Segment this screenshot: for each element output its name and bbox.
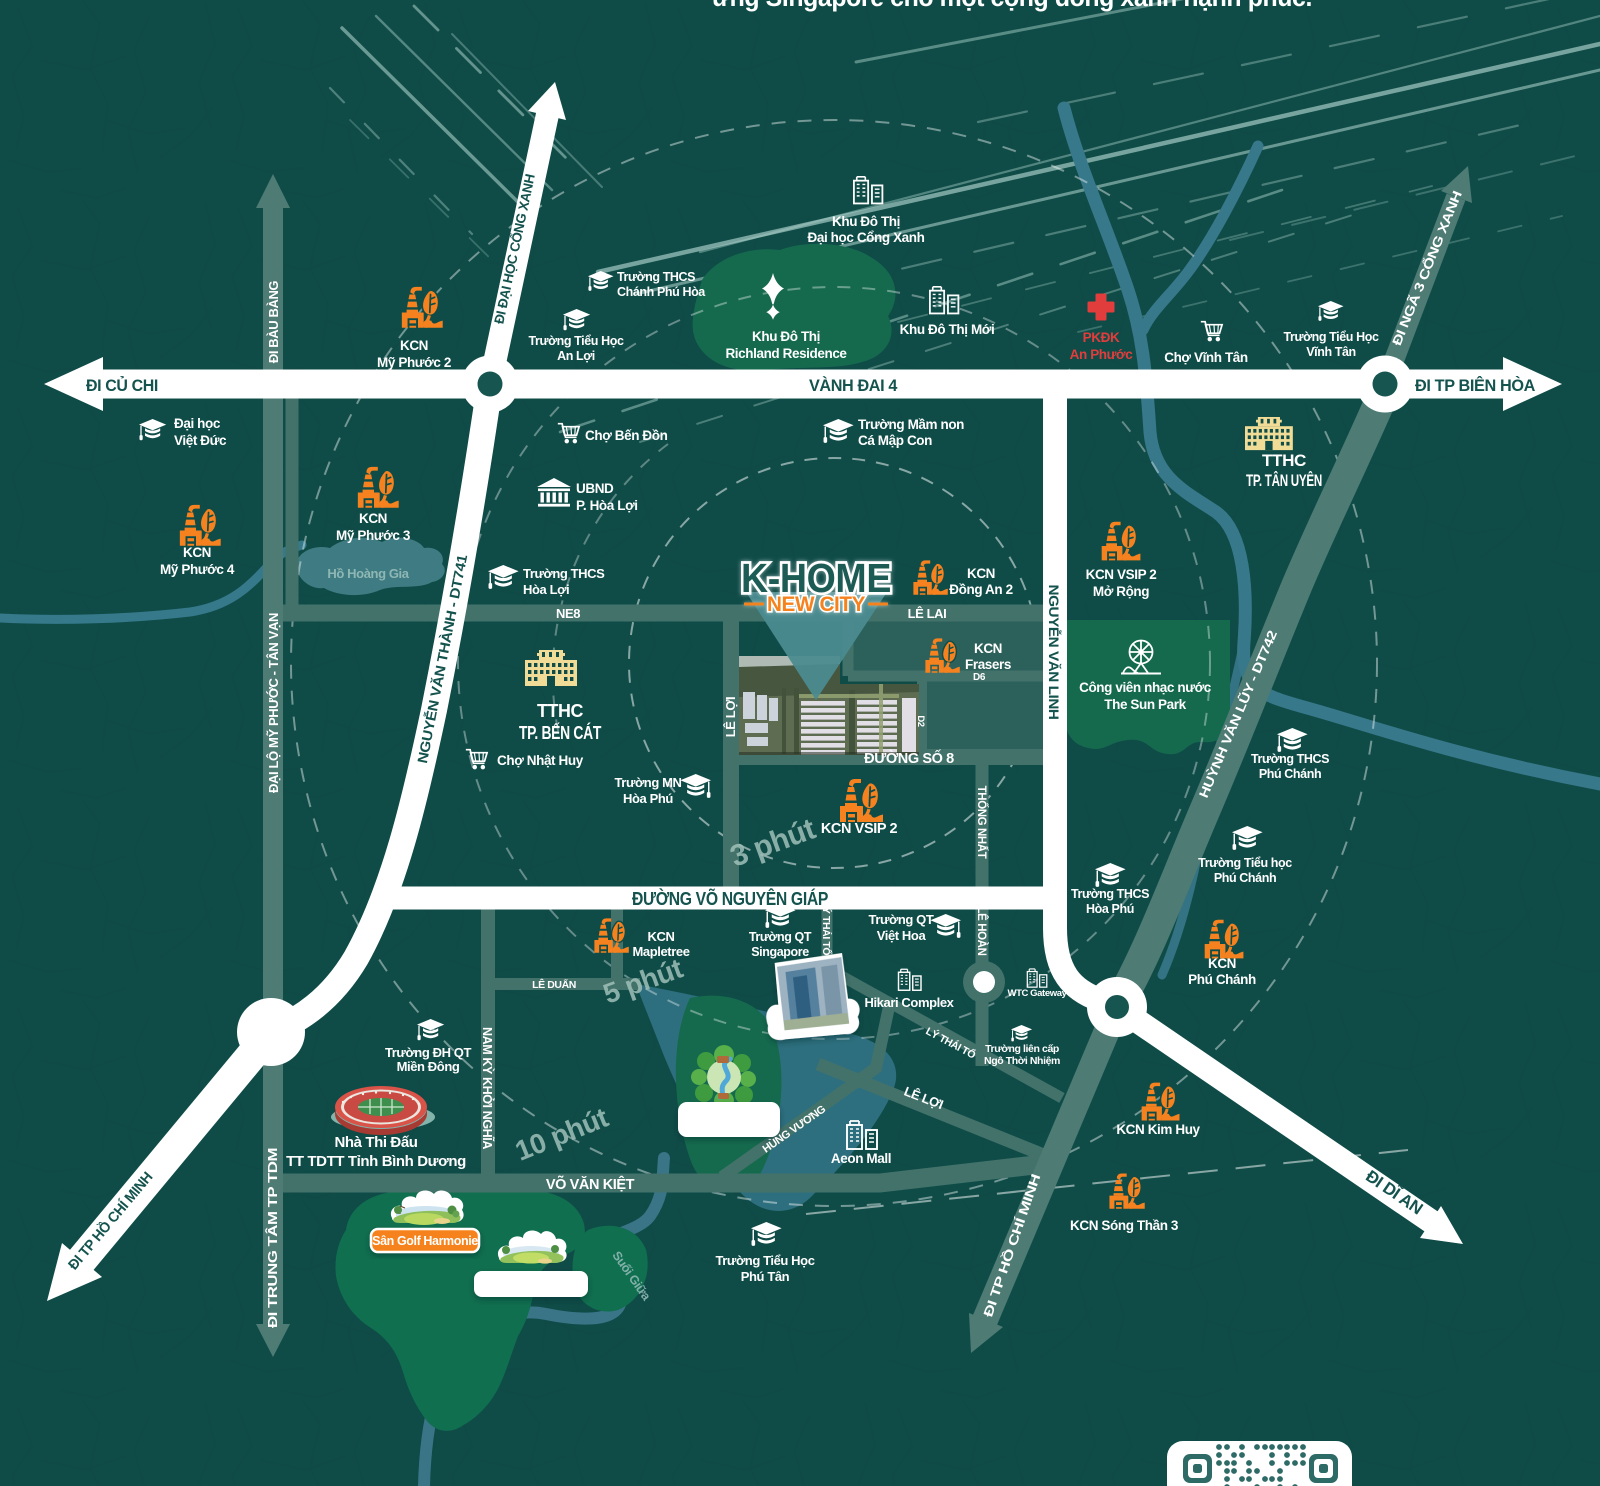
svg-text:LÝ THÁI TỔ: LÝ THÁI TỔ (820, 901, 833, 956)
svg-text:VÕ VĂN KIỆT: VÕ VĂN KIỆT (546, 1175, 635, 1193)
svg-text:KCN: KCN (1208, 956, 1236, 971)
svg-text:Hòa Lợi: Hòa Lợi (523, 582, 569, 597)
svg-text:NAM KỲ KHỞI NGHĨA: NAM KỲ KHỞI NGHĨA (480, 1027, 495, 1149)
svg-text:Đồng An 2: Đồng An 2 (949, 582, 1012, 597)
svg-text:Hòa Phú: Hòa Phú (623, 791, 673, 806)
svg-text:NGUYỄN VĂN LINH: NGUYỄN VĂN LINH (1046, 585, 1061, 720)
svg-text:Chợ Nhật Huy: Chợ Nhật Huy (497, 753, 584, 768)
svg-text:KCN: KCN (183, 545, 211, 560)
svg-text:TT TDTT Tỉnh Bình Dương: TT TDTT Tỉnh Bình Dương (286, 1153, 466, 1170)
svg-text:Đại học Cổng Xanh: Đại học Cổng Xanh (808, 230, 925, 245)
svg-text:Khu Đô Thị Mới: Khu Đô Thị Mới (900, 322, 995, 337)
svg-text:Trường THCS: Trường THCS (1071, 887, 1149, 901)
svg-text:Frasers: Frasers (965, 657, 1011, 672)
svg-text:Trường QT: Trường QT (749, 930, 812, 944)
svg-text:Khu Đô Thị: Khu Đô Thị (752, 329, 820, 344)
svg-text:Nhà Thi Đấu: Nhà Thi Đấu (334, 1134, 417, 1151)
svg-text:ĐƯỜNG VÕ NGUYÊN GIÁP: ĐƯỜNG VÕ NGUYÊN GIÁP (632, 888, 828, 909)
svg-text:Mở Rộng: Mở Rộng (1093, 584, 1149, 599)
svg-text:THỐNG NHẤT: THỐNG NHẤT (975, 786, 989, 859)
svg-text:Miền Đông: Miền Đông (397, 1059, 460, 1074)
svg-text:Việt Đức: Việt Đức (174, 433, 227, 448)
svg-text:Chánh Phú Hòa: Chánh Phú Hòa (617, 285, 706, 299)
svg-text:WTC Gateway: WTC Gateway (1008, 988, 1068, 999)
svg-text:Phú Chánh: Phú Chánh (1188, 972, 1256, 987)
svg-text:KCN: KCN (359, 511, 387, 526)
svg-text:ĐI TP BIÊN HÒA: ĐI TP BIÊN HÒA (1415, 376, 1535, 395)
svg-text:ĐI BÀU BÀNG: ĐI BÀU BÀNG (266, 281, 281, 364)
svg-text:LÊ DUẨN: LÊ DUẨN (532, 978, 576, 991)
svg-text:Trường THCS: Trường THCS (617, 270, 695, 284)
svg-text:LÊ HOÀN: LÊ HOÀN (975, 907, 988, 956)
svg-text:KCN Sóng Thần 3: KCN Sóng Thần 3 (1070, 1218, 1179, 1233)
svg-text:Đại học: Đại học (174, 416, 221, 431)
svg-text:LÊ LỢI: LÊ LỢI (723, 697, 738, 737)
svg-text:Khu Đô Thị: Khu Đô Thị (832, 214, 900, 229)
svg-text:PKĐK: PKĐK (1083, 330, 1120, 345)
svg-text:KCN: KCN (967, 566, 995, 581)
svg-text:Mỹ Phước 2: Mỹ Phước 2 (377, 355, 451, 370)
svg-text:Trường Tiểu Học: Trường Tiểu Học (715, 1253, 814, 1268)
svg-text:Mapletree: Mapletree (632, 944, 689, 959)
svg-text:Phú Tân: Phú Tân (741, 1269, 790, 1284)
svg-text:P. Hòa Lợi: P. Hòa Lợi (576, 498, 638, 513)
svg-text:TTHC: TTHC (537, 701, 583, 721)
svg-text:Mỹ Phước 3: Mỹ Phước 3 (336, 528, 411, 543)
svg-text:Singapore: Singapore (751, 945, 809, 959)
svg-text:UBND: UBND (576, 481, 614, 496)
svg-text:KCN VSIP 2: KCN VSIP 2 (1086, 567, 1157, 582)
svg-text:ĐƯỜNG SỐ 8: ĐƯỜNG SỐ 8 (864, 749, 954, 767)
svg-text:Trường QT: Trường QT (869, 912, 934, 927)
svg-text:Trường Tiểu Học: Trường Tiểu Học (528, 334, 623, 348)
svg-text:The Sun Park: The Sun Park (1104, 697, 1186, 712)
svg-text:NEW CITY: NEW CITY (767, 593, 865, 616)
svg-text:An Phước: An Phước (1070, 347, 1134, 362)
svg-text:Trường THCS: Trường THCS (1251, 752, 1329, 766)
svg-text:KCN: KCN (400, 338, 428, 353)
svg-text:ĐẠI LỘ MỸ PHƯỚC - TÂN VẠN: ĐẠI LỘ MỸ PHƯỚC - TÂN VẠN (266, 613, 281, 793)
svg-text:Trường liên cấp: Trường liên cấp (985, 1043, 1059, 1055)
svg-text:TP. TÂN UYÊN: TP. TÂN UYÊN (1246, 471, 1322, 490)
svg-text:Phú Chánh: Phú Chánh (1259, 767, 1321, 781)
svg-text:NE8: NE8 (556, 606, 580, 621)
svg-text:Cá Mập Con: Cá Mập Con (858, 433, 932, 448)
svg-text:Chợ Vĩnh Tân: Chợ Vĩnh Tân (1164, 350, 1248, 365)
svg-text:D6: D6 (973, 672, 986, 683)
svg-text:TTHC: TTHC (1262, 451, 1306, 470)
svg-text:ĐI CỦ CHI: ĐI CỦ CHI (86, 376, 158, 395)
svg-text:Richland Residence: Richland Residence (725, 346, 847, 361)
svg-text:ừng Singapore cho một cộng đồn: ừng Singapore cho một cộng đồng xanh hạn… (712, 0, 1312, 12)
svg-text:KCN: KCN (974, 641, 1002, 656)
svg-text:TP. BẾN CÁT: TP. BẾN CÁT (519, 722, 601, 743)
svg-text:VÀNH ĐAI 4: VÀNH ĐAI 4 (809, 376, 898, 395)
svg-text:D2: D2 (915, 715, 926, 726)
svg-text:Ngô Thời Nhiệm: Ngô Thời Nhiệm (984, 1055, 1060, 1067)
svg-text:KCN Kim Huy: KCN Kim Huy (1116, 1122, 1200, 1137)
svg-text:KCN: KCN (648, 929, 675, 944)
svg-text:Trường Tiểu học: Trường Tiểu học (1198, 856, 1292, 870)
svg-text:KCN VSIP 2: KCN VSIP 2 (821, 821, 898, 837)
svg-text:Công viên nhạc nước: Công viên nhạc nước (1079, 680, 1212, 695)
svg-text:Vĩnh Tân: Vĩnh Tân (1306, 345, 1356, 359)
svg-text:Chợ Bến Đồn: Chợ Bến Đồn (585, 428, 668, 443)
svg-text:Trường Tiểu Học: Trường Tiểu Học (1283, 330, 1378, 344)
svg-text:Mỹ Phước 4: Mỹ Phước 4 (160, 562, 235, 577)
svg-text:Hikari Complex: Hikari Complex (864, 995, 954, 1010)
svg-text:Aeon Mall: Aeon Mall (831, 1151, 891, 1166)
svg-text:An Lợi: An Lợi (557, 349, 595, 363)
svg-text:LÊ LAI: LÊ LAI (908, 606, 947, 621)
svg-text:Việt Hoa: Việt Hoa (877, 928, 927, 943)
svg-text:Hòa Phú: Hòa Phú (1086, 902, 1134, 916)
svg-text:Trường Mầm non: Trường Mầm non (858, 417, 964, 432)
svg-text:Trường MN: Trường MN (614, 775, 681, 790)
svg-text:Trường THCS: Trường THCS (523, 566, 605, 581)
svg-text:Trường ĐH QT: Trường ĐH QT (385, 1045, 472, 1060)
svg-text:Phú Chánh: Phú Chánh (1214, 871, 1276, 885)
svg-text:ĐI TRUNG TÂM TP TDM: ĐI TRUNG TÂM TP TDM (265, 1148, 280, 1328)
svg-text:Hồ Hoàng Gia: Hồ Hoàng Gia (327, 566, 409, 581)
svg-text:Sân Golf Harmonie: Sân Golf Harmonie (372, 1234, 478, 1248)
